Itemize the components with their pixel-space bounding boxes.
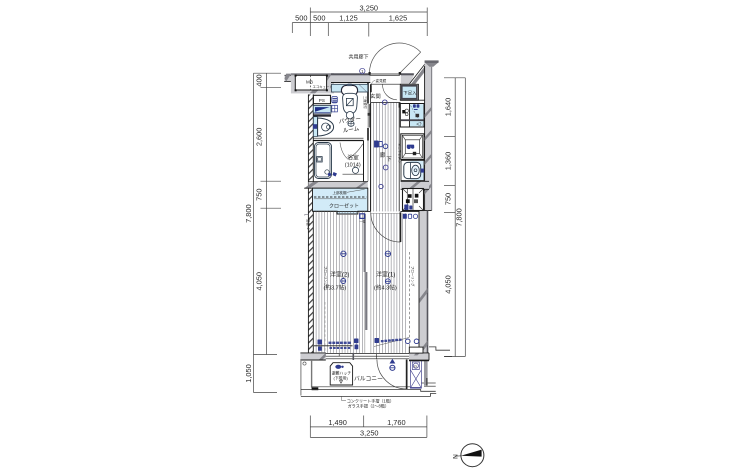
svg-text:750: 750 <box>255 189 264 201</box>
svg-text:共用廊下: 共用廊下 <box>349 54 369 61</box>
svg-text:玄関: 玄関 <box>370 92 380 100</box>
svg-text:2,600: 2,600 <box>255 128 264 147</box>
svg-text:400: 400 <box>255 74 264 86</box>
svg-text:コンクリート手摺（1階）: コンクリート手摺（1階） <box>347 397 394 403</box>
svg-text:ミニキッチン: ミニキッチン <box>397 143 402 164</box>
svg-text:(1014): (1014) <box>345 163 361 169</box>
svg-text:バルコニー: バルコニー <box>354 376 383 383</box>
svg-text:7,800: 7,800 <box>454 208 463 227</box>
svg-text:姿見鏡: 姿見鏡 <box>376 78 387 83</box>
svg-text:ガラス手摺（2～8階）: ガラス手摺（2～8階） <box>348 403 389 409</box>
svg-text:(約4.3帖): (約4.3帖) <box>374 284 397 292</box>
svg-text:エコキュート: エコキュート <box>313 85 333 89</box>
svg-text:1,490: 1,490 <box>328 418 347 427</box>
svg-text:500: 500 <box>313 14 325 23</box>
svg-text:4,050: 4,050 <box>255 272 264 291</box>
svg-text:3,250: 3,250 <box>360 3 379 12</box>
svg-text:上部枕棚: 上部枕棚 <box>333 190 347 195</box>
svg-text:N: N <box>452 454 459 459</box>
svg-text:G: G <box>414 365 417 369</box>
svg-text:MB: MB <box>306 80 313 85</box>
svg-text:竪樋×2: 竪樋×2 <box>306 219 311 230</box>
svg-text:1,125: 1,125 <box>339 14 358 23</box>
svg-text:洋室(2): 洋室(2) <box>330 271 349 279</box>
svg-text:1,625: 1,625 <box>389 14 408 23</box>
svg-text:1,640: 1,640 <box>444 98 453 117</box>
svg-text:4,050: 4,050 <box>444 275 453 294</box>
svg-text:(下階用): (下階用) <box>334 375 349 380</box>
svg-text:一位: 一位 <box>360 219 366 224</box>
svg-text:3,250: 3,250 <box>360 429 379 438</box>
svg-text:1,360: 1,360 <box>444 152 453 171</box>
svg-text:2口: 2口 <box>417 122 422 126</box>
svg-text:浴室: 浴室 <box>347 154 359 162</box>
svg-text:1,760: 1,760 <box>387 418 406 427</box>
svg-text:クローゼット: クローゼット <box>329 202 359 209</box>
svg-text:洋室(1): 洋室(1) <box>376 271 395 279</box>
svg-text:1,050: 1,050 <box>244 364 253 383</box>
svg-text:フローリング: フローリング <box>324 266 329 287</box>
svg-text:750: 750 <box>444 193 453 205</box>
svg-text:フローリング: フローリング <box>411 266 416 287</box>
svg-text:下: 下 <box>386 156 392 163</box>
svg-text:PS: PS <box>319 98 325 103</box>
svg-text:三面鏡付: 三面鏡付 <box>363 96 368 110</box>
svg-text:7,800: 7,800 <box>244 204 253 223</box>
svg-text:廊: 廊 <box>380 151 386 159</box>
svg-text:500: 500 <box>295 14 307 23</box>
